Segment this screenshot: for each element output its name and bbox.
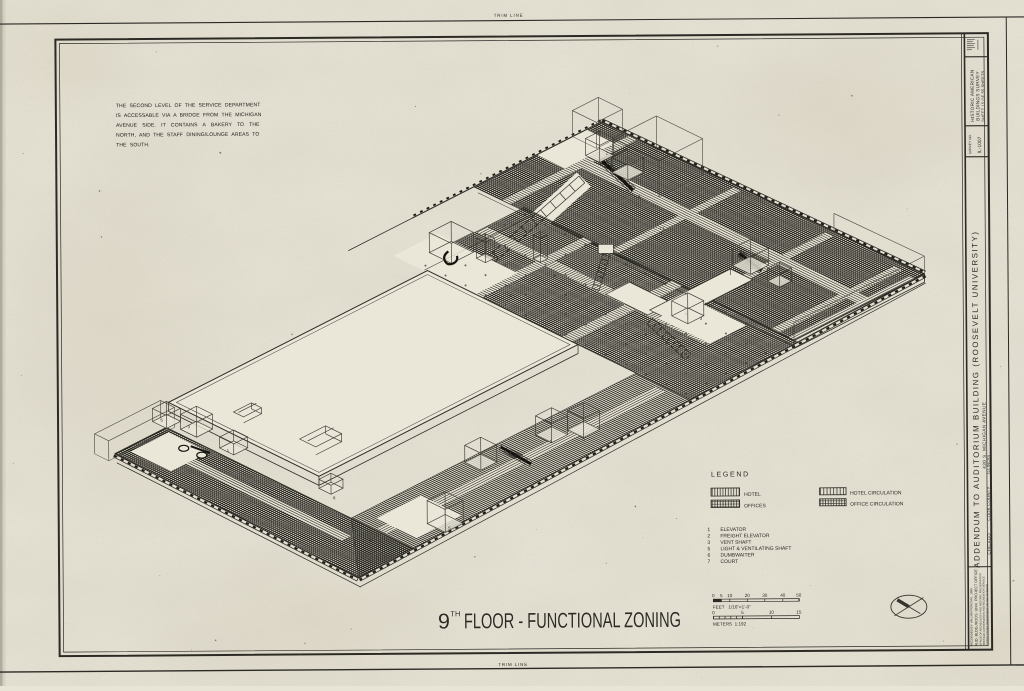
- svg-text:6: 6: [707, 553, 710, 559]
- svg-text:2: 2: [707, 534, 710, 540]
- svg-text:10: 10: [769, 610, 775, 615]
- svg-text:30: 30: [762, 593, 768, 598]
- svg-text:DUMBWAITER: DUMBWAITER: [720, 552, 754, 558]
- svg-text:3: 3: [707, 540, 710, 546]
- svg-text:TRIM LINE: TRIM LINE: [498, 662, 528, 667]
- svg-text:VENT SHAFT: VENT SHAFT: [720, 540, 751, 546]
- svg-text:20: 20: [745, 593, 751, 598]
- svg-text:RECORDED BY: WILLIAM PERCIVAL,: RECORDED BY: WILLIAM PERCIVAL, 1980: [969, 588, 973, 646]
- svg-text:IS ACCESSABLE VIA A BRIDGE FRO: IS ACCESSABLE VIA A BRIDGE FROM THE MICH…: [116, 112, 262, 119]
- svg-text:UNITED STATES DEPARTMENT OF TH: UNITED STATES DEPARTMENT OF THE INTERIOR: [985, 584, 989, 646]
- svg-text:7: 7: [708, 559, 711, 565]
- svg-text:AVENUE SIDE. IT CONTAINS A BAK: AVENUE SIDE. IT CONTAINS A BAKERY TO THE: [116, 122, 260, 129]
- svg-text:TRIM LINE: TRIM LINE: [494, 13, 524, 18]
- svg-text:CHICAGO COOK COUNTY: CHICAGO COOK COUNTY ILLINOIS: [986, 455, 992, 555]
- svg-text:15: 15: [796, 610, 802, 615]
- svg-text:OFFICE CIRCULATION: OFFICE CIRCULATION: [850, 501, 904, 507]
- svg-text:9: 9: [438, 609, 450, 633]
- svg-text:IL-1007: IL-1007: [977, 136, 983, 153]
- svg-text:METERS 1:192: METERS 1:192: [713, 621, 747, 626]
- svg-text:THE SOUTH.: THE SOUTH.: [116, 142, 150, 148]
- svg-text:THE SECOND LEVEL OF THE SERVIC: THE SECOND LEVEL OF THE SERVICE DEPARTME…: [116, 102, 261, 109]
- svg-text:AUD. BLDG./ROOS. UNIV. PROJECT: AUD. BLDG./ROOS. UNIV. PROJECT OFFICE: [974, 569, 979, 647]
- svg-text:50: 50: [796, 593, 802, 598]
- svg-text:FEET 1/16”=1’-0”: FEET 1/16”=1’-0”: [713, 604, 751, 609]
- svg-text:LIGHT & VENTILATING SHAFT: LIGHT & VENTILATING SHAFT: [720, 546, 791, 552]
- svg-text:1: 1: [707, 527, 710, 533]
- svg-text:NORTH, AND THE STAFF DINING/LO: NORTH, AND THE STAFF DINING/LOUNGE AREAS…: [116, 132, 259, 139]
- svg-text:5: 5: [707, 546, 710, 552]
- svg-text:SHEET 15 OF 55 SHEETS: SHEET 15 OF 55 SHEETS: [980, 70, 985, 121]
- svg-text:HOTEL CIRCULATION: HOTEL CIRCULATION: [850, 490, 902, 496]
- svg-text:40: 40: [780, 593, 786, 598]
- svg-text:LEGEND: LEGEND: [711, 471, 750, 478]
- svg-text:HOTEL: HOTEL: [744, 492, 761, 498]
- svg-text:10: 10: [727, 593, 733, 598]
- svg-text:FREIGHT ELEVATOR: FREIGHT ELEVATOR: [720, 533, 770, 539]
- svg-text:FLOOR - FUNCTIONAL ZONING: FLOOR - FUNCTIONAL ZONING: [464, 608, 681, 634]
- svg-text:COURT: COURT: [721, 559, 739, 565]
- svg-text:ELEVATOR: ELEVATOR: [720, 527, 746, 533]
- svg-text:TH: TH: [450, 609, 460, 618]
- svg-text:SURVEY NO.: SURVEY NO.: [968, 134, 972, 154]
- svg-text:OFFICES: OFFICES: [744, 503, 766, 509]
- svg-text:HISTORIC AMERICAN: HISTORIC AMERICAN: [970, 70, 975, 122]
